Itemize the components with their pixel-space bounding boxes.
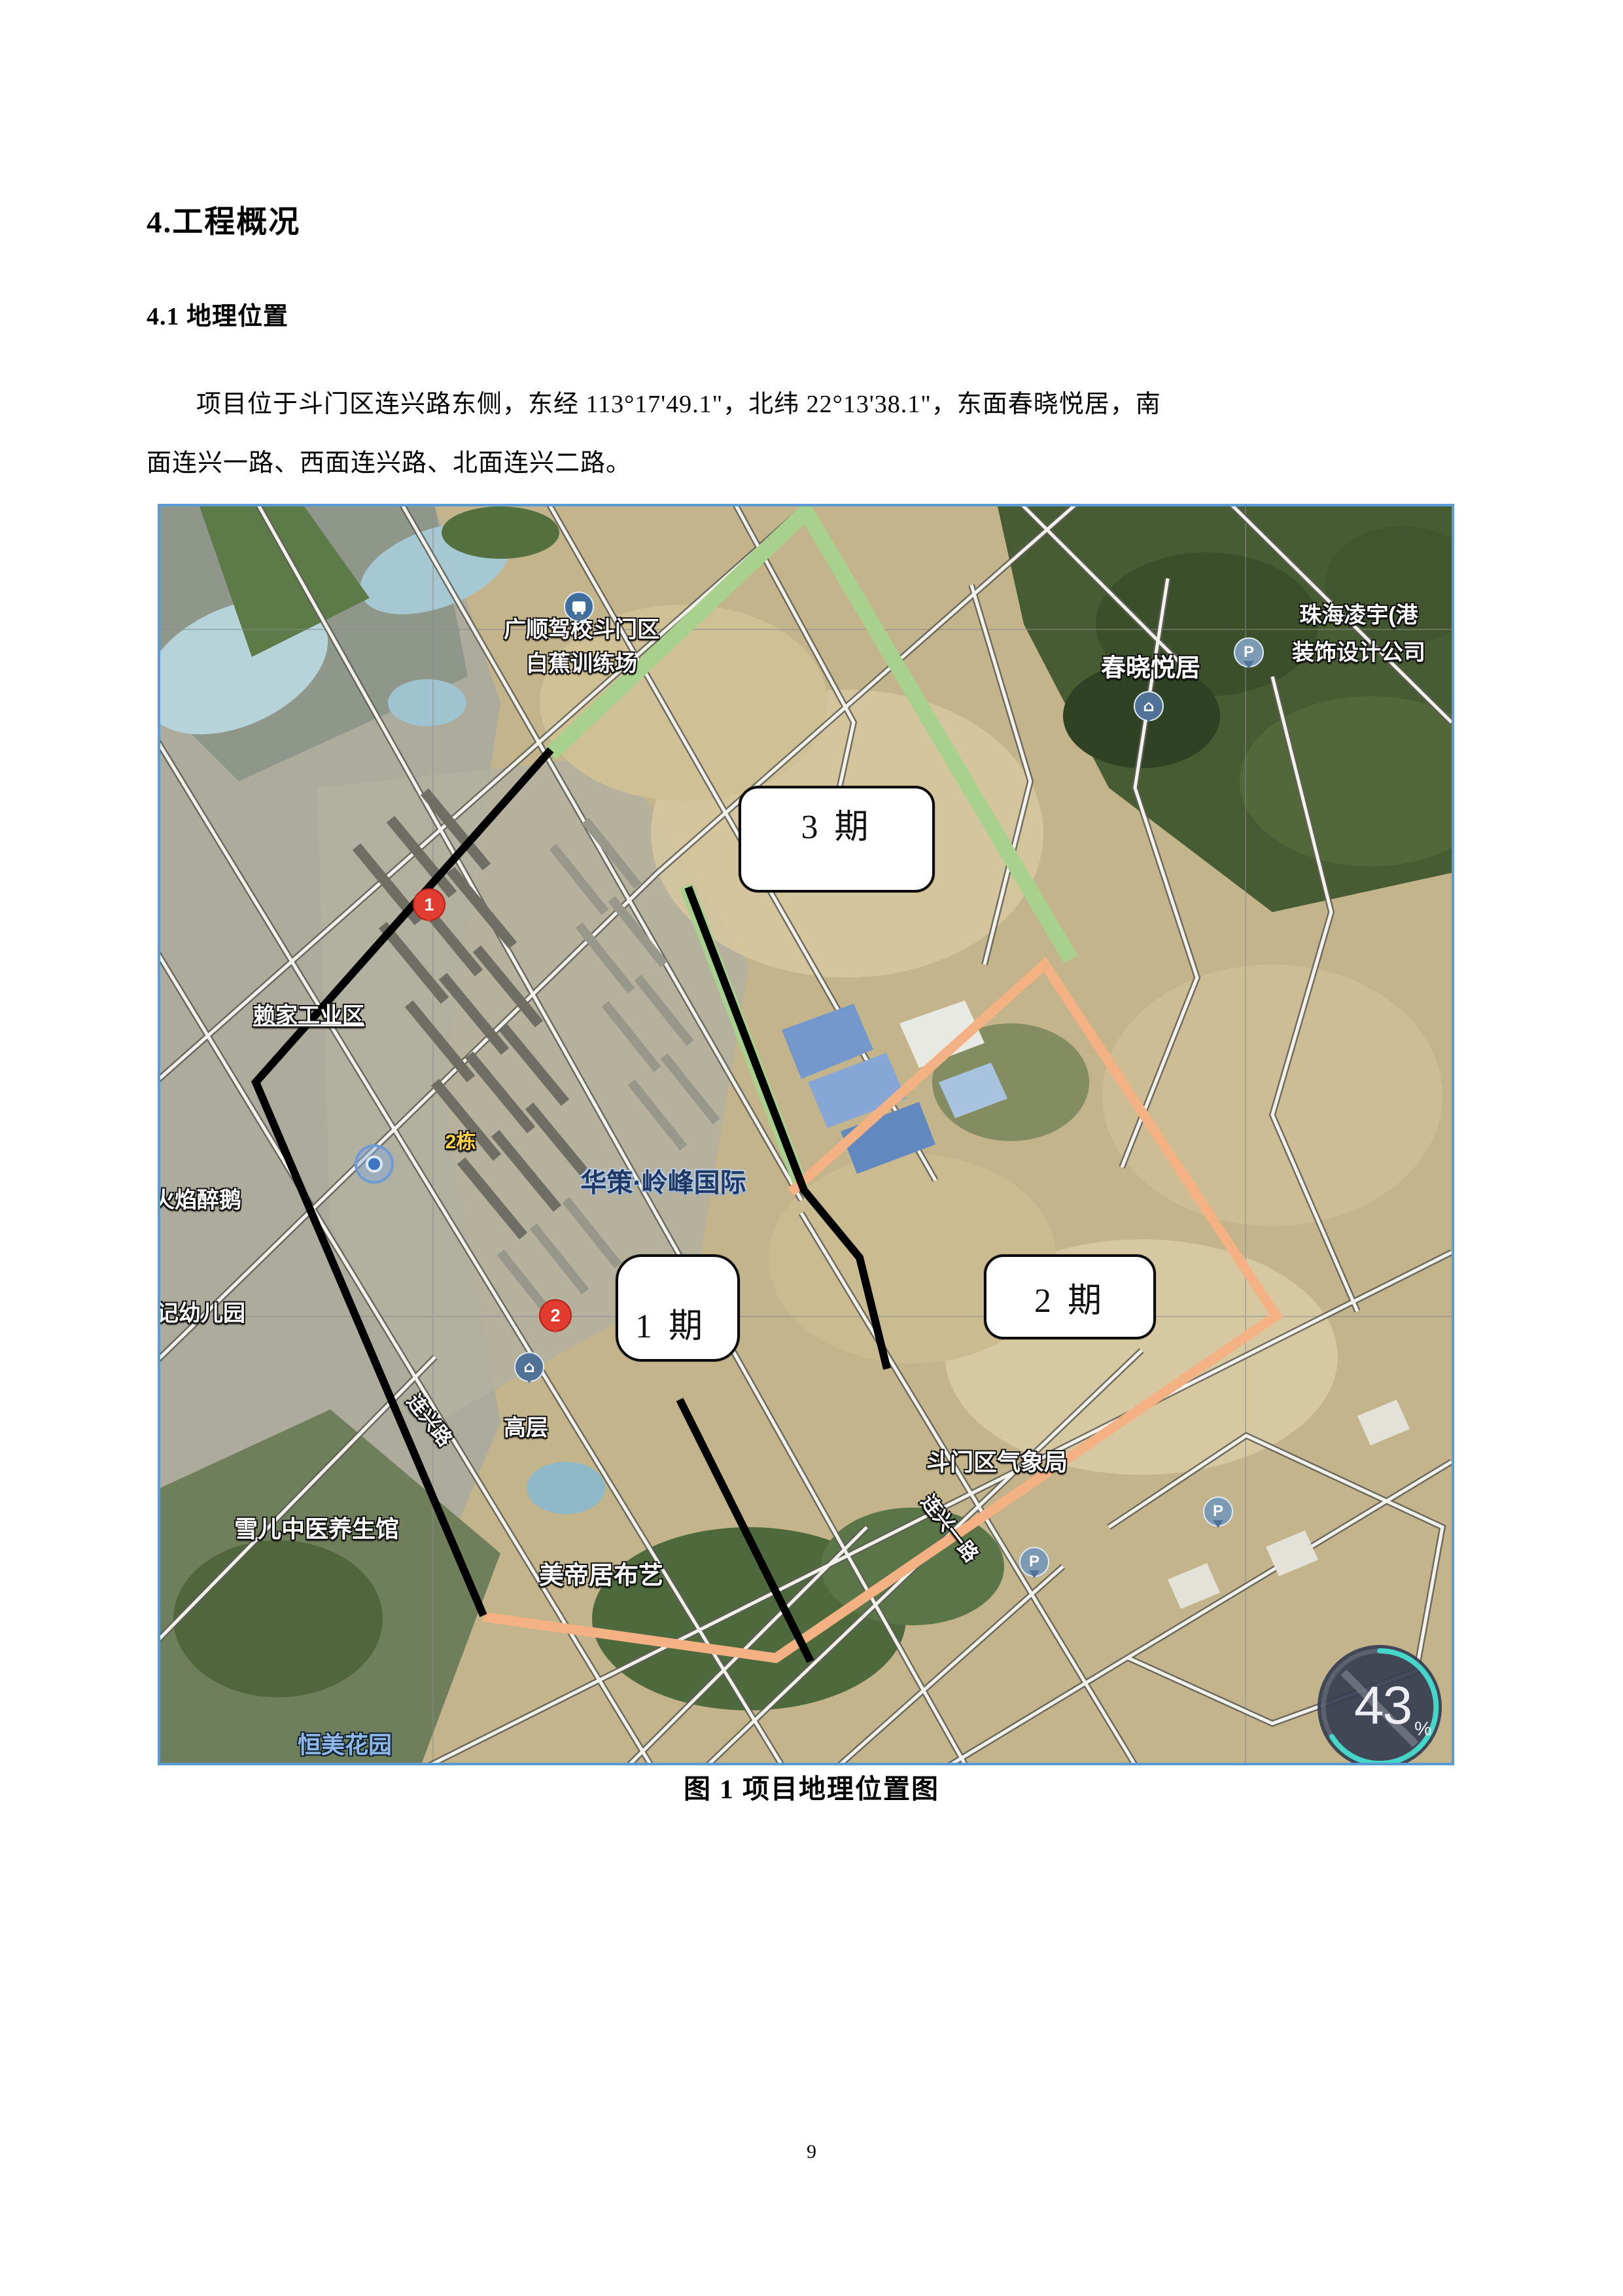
marker-2-icon: 2 [539,1299,572,1332]
phase3-label-box: 3 期 [739,786,935,892]
poi-label-driving-school-line2: 白蕉训练场 [526,646,637,678]
home-icon: ⌂ [1134,691,1164,721]
poi-label-kindergarten: 记幼儿园 [158,1296,245,1328]
section-heading: 4.工程概况 [147,196,300,241]
poi-label-chunxiao: 春晓悦居 [1101,648,1200,684]
satellite-map-graphic [160,506,1452,1763]
compass-unit: % [1414,1718,1432,1740]
poi-label-weather-bureau: 斗门区气象局 [926,1443,1068,1477]
location-target-icon [355,1144,394,1184]
poi-label-huace-lingfeng: 华策·岭峰国际 [580,1161,746,1199]
document-page: 4.工程概况 4.1 地理位置 项目位于斗门区连兴路东侧，东经 113°17'4… [0,0,1623,2296]
poi-label-laijia-industrial: 赖家工业区 [253,998,364,1030]
poi-label-zhuhai-line2: 装饰设计公司 [1292,635,1425,667]
figure-caption: 图 1 项目地理位置图 [0,1767,1623,1806]
map-compass-dial: 43 % [1318,1645,1442,1765]
poi-label-huoyan: 火焰醉鹅 [158,1182,241,1214]
poi-label-gaoceng: 高层 [504,1410,548,1442]
poi-label-building2: 2栋 [445,1125,476,1154]
poi-label-hengmei-garden: 恒美花园 [298,1726,392,1760]
phase1-label-box: 1 期 [616,1254,740,1362]
parking-icon: P [1019,1547,1049,1577]
poi-label-xueer-clinic: 雪儿中医养生馆 [234,1510,399,1544]
bus-station-icon [564,592,594,622]
body-paragraph-line-1: 项目位于斗门区连兴路东侧，东经 113°17'49.1"，北纬 22°13'38… [147,383,1531,419]
marker-1-icon: 1 [413,889,445,921]
body-paragraph-line-2: 面连兴一路、西面连兴路、北面连兴二路。 [147,442,1481,478]
poi-label-meidiju: 美帝居布艺 [539,1555,663,1591]
parking-icon: P [1203,1496,1233,1527]
subsection-heading: 4.1 地理位置 [147,296,288,332]
phase2-label-box: 2 期 [984,1254,1156,1339]
compass-value: 43 [1354,1675,1411,1737]
parking-icon: P [1234,637,1264,667]
home-icon: ⌂ [514,1352,544,1382]
location-map-figure: 广顺驾校斗门区 白蕉训练场 春晓悦居 珠海凌宇(港 装饰设计公司 赖家工业区 火… [158,504,1454,1765]
page-number: 9 [0,2141,1623,2163]
poi-label-zhuhai-line1: 珠海凌宇(港 [1299,597,1418,629]
